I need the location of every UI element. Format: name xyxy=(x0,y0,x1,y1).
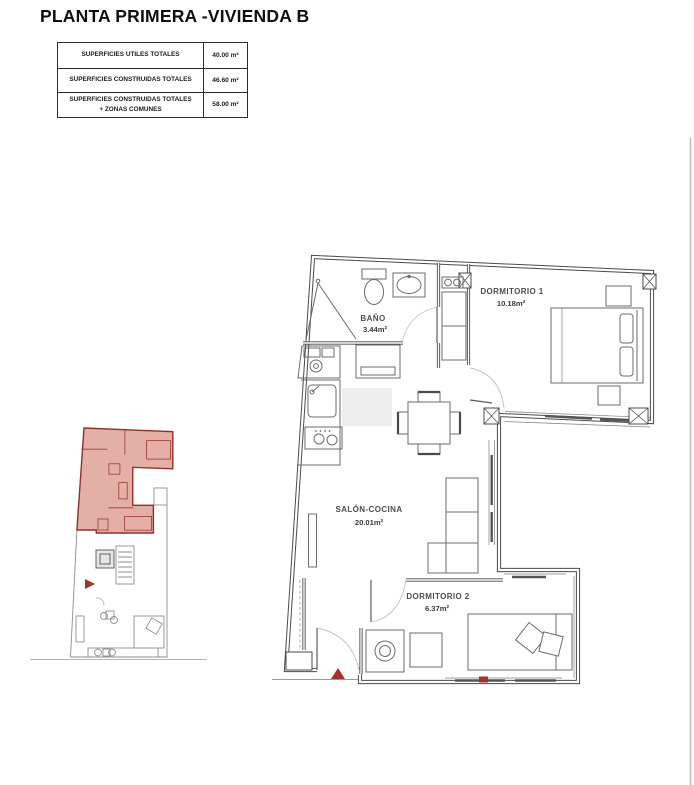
plan-drawing: BAÑO 3.44m² DORMITORIO 1 10.18m² SALÓN-C… xyxy=(0,0,694,785)
nightstand xyxy=(606,286,631,306)
key-plan-entrance-marker xyxy=(85,579,95,589)
washing-machine-icon xyxy=(366,630,404,672)
pillow xyxy=(620,347,633,376)
room-bano-label: BAÑO xyxy=(360,314,385,323)
room-bano-area: 3.44m² xyxy=(363,325,388,334)
floor-plan: BAÑO 3.44m² DORMITORIO 1 10.18m² SALÓN-C… xyxy=(272,257,656,683)
room-dormitorio1-area: 10.18m² xyxy=(497,299,526,308)
toilet-icon xyxy=(362,269,386,279)
key-plan-highlight xyxy=(77,428,173,533)
room-salon-area: 20.01m² xyxy=(355,518,384,527)
room-salon-label: SALÓN-COCINA xyxy=(335,505,402,514)
key-plan xyxy=(30,428,207,660)
pillow xyxy=(620,314,633,343)
elevator-icon xyxy=(96,550,114,568)
room-dormitorio2-label: DORMITORIO 2 xyxy=(406,592,469,601)
red-mark xyxy=(479,677,488,683)
cabinet xyxy=(410,633,442,667)
nightstand xyxy=(598,386,620,405)
room-dormitorio1-label: DORMITORIO 1 xyxy=(480,287,543,296)
floor-plan-sheet: PLANTA PRIMERA -VIVIENDA B SUPERFICIES U… xyxy=(0,0,694,785)
wardrobe xyxy=(442,292,466,326)
room-dormitorio2-area: 6.37m² xyxy=(425,604,450,613)
